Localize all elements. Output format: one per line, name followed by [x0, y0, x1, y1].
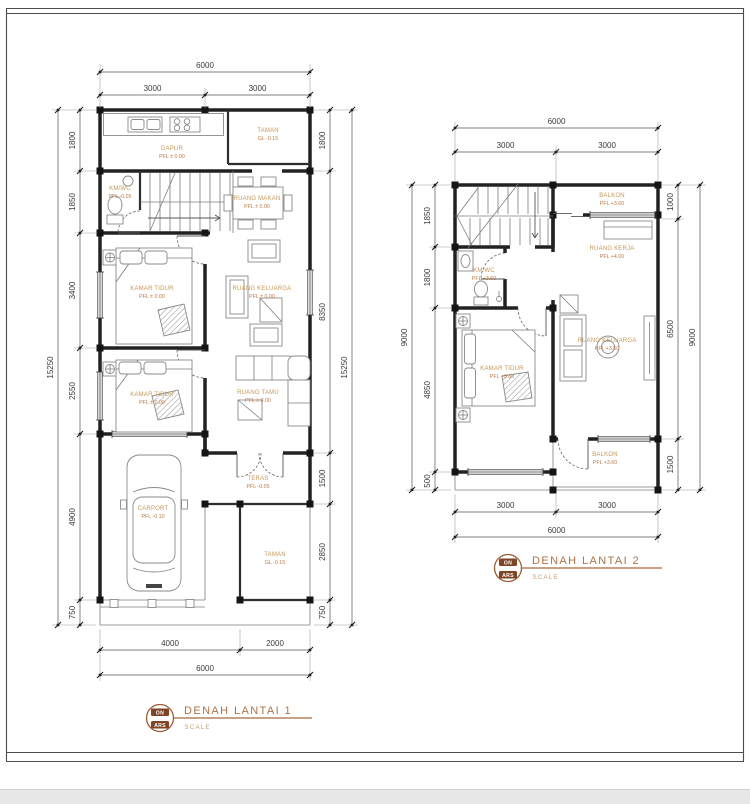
dim-label: 1850 — [423, 207, 432, 225]
dim-label: 1500 — [666, 455, 675, 473]
room-level-carport: PFL -0.10 — [141, 514, 164, 520]
room-level-kamar-tidur-3: PFL +3.60 — [490, 374, 514, 380]
room-label-kamar-tidur-1: KAMAR TIDUR — [130, 286, 174, 292]
dim-label: 4900 — [68, 508, 77, 526]
room-level-ruang-tamu: PFL ± 0.00 — [245, 398, 271, 404]
dim-label: 9000 — [688, 328, 697, 346]
desk-symbol — [604, 221, 652, 239]
logo-top-text: ON — [504, 560, 512, 566]
dim-label: 15250 — [340, 356, 349, 379]
plan2-scale-label: SCALE — [533, 574, 559, 581]
sheet-background — [0, 0, 750, 804]
toilet-symbol — [475, 281, 488, 297]
dim-label: 6000 — [548, 526, 566, 535]
room-label-balkon-bawah: BALKON — [592, 452, 618, 458]
dim-label: 2000 — [266, 639, 284, 648]
room-level-kamar-tidur-1: PFL ± 0.00 — [139, 294, 165, 300]
room-label-ruang-tamu: RUANG TAMU — [237, 390, 279, 396]
dim-label: 4000 — [161, 639, 179, 648]
room-level-taman-depan: GL -0.15 — [265, 560, 285, 566]
room-level-kmwc-2: PFL +3.60 — [472, 276, 496, 282]
room-level-kmwc: PFL -0.05 — [108, 194, 131, 200]
logo-top-text: ON — [156, 710, 164, 716]
dim-label: 750 — [318, 605, 327, 619]
dim-label: 1800 — [318, 131, 327, 149]
room-level-balkon-atas: PFL +3.60 — [600, 201, 624, 207]
room-label-teras: TERAS — [247, 476, 268, 482]
washbasin-symbol — [123, 176, 133, 186]
room-label-kmwc: KM/WC — [109, 186, 131, 192]
plan1-title: DENAH LANTAI 1 — [184, 705, 292, 717]
floorplan-sheet: 6000 3000 3000 1800 1850 3400 2550 4900 … — [0, 0, 750, 804]
dim-label: 3000 — [598, 501, 616, 510]
room-level-kamar-tidur-2: PFL ± 0.00 — [139, 400, 165, 406]
room-label-ruang-makan: RUANG MAKAN — [234, 196, 281, 202]
room-level-balkon-bawah: PFL +3.60 — [593, 460, 617, 466]
dim-label: 6000 — [548, 117, 566, 126]
room-level-ruang-keluarga: PFL ± 0.00 — [249, 294, 275, 300]
dim-label: 3000 — [598, 141, 616, 150]
logo-bottom-text: ARS — [154, 723, 166, 729]
room-label-balkon-atas: BALKON — [599, 193, 625, 199]
dim-label: 3400 — [68, 281, 77, 299]
dim-label: 3000 — [497, 141, 515, 150]
dim-label: 2850 — [318, 543, 327, 561]
dim-label: 1000 — [666, 193, 675, 211]
room-level-ruang-kerja: PFL +4.00 — [600, 254, 624, 260]
washbasin-symbol — [458, 251, 473, 271]
dim-label: 3000 — [144, 84, 162, 93]
room-level-dapur: PFL ± 0.00 — [159, 154, 185, 160]
room-label-kamar-tidur-3: KAMAR TIDUR — [480, 366, 524, 372]
room-label-kmwc-2: KM/WC — [473, 268, 495, 274]
dim-label: 1800 — [423, 268, 432, 286]
room-label-ruang-keluarga: RUANG KELUARGA — [233, 286, 292, 292]
room-level-teras: PFL -0.05 — [246, 484, 269, 490]
room-label-ruang-kerja: RUANG KERJA — [590, 246, 635, 252]
dim-label: 6000 — [196, 664, 214, 673]
dim-label: 15250 — [46, 356, 55, 379]
room-label-kamar-tidur-2: KAMAR TIDUR — [130, 392, 174, 398]
dim-label: 500 — [423, 474, 432, 488]
dim-label: 8350 — [318, 303, 327, 321]
room-level-ruang-makan: PFL ± 0.00 — [244, 204, 270, 210]
dim-label: 750 — [68, 605, 77, 619]
dim-label: 4850 — [423, 381, 432, 399]
dim-label: 2550 — [68, 382, 77, 400]
room-label-taman-depan: TAMAN — [264, 552, 286, 558]
room-level-ruang-keluarga-2: PFL +3.60 — [595, 346, 619, 352]
dim-label: 9000 — [400, 328, 409, 346]
footer-strip — [0, 790, 750, 804]
dim-label: 1500 — [318, 469, 327, 487]
dim-label: 6500 — [666, 320, 675, 338]
room-label-taman-belakang: TAMAN — [257, 128, 279, 134]
dim-label: 3000 — [249, 84, 267, 93]
dim-label: 6000 — [196, 61, 214, 70]
dim-label: 1800 — [68, 131, 77, 149]
room-level-taman-belakang: GL -0.15 — [258, 136, 278, 142]
plan1-scale-label: SCALE — [185, 724, 211, 731]
dim-label: 1850 — [68, 193, 77, 211]
room-label-dapur: DAPUR — [161, 146, 183, 152]
dim-label: 3000 — [497, 501, 515, 510]
room-label-carport: CARPORT — [138, 506, 169, 512]
logo-bottom-text: ARS — [502, 573, 514, 579]
plan2-title: DENAH LANTAI 2 — [532, 555, 640, 567]
room-label-ruang-keluarga-2: RUANG KELUARGA — [578, 338, 637, 344]
car-symbol — [121, 455, 188, 591]
